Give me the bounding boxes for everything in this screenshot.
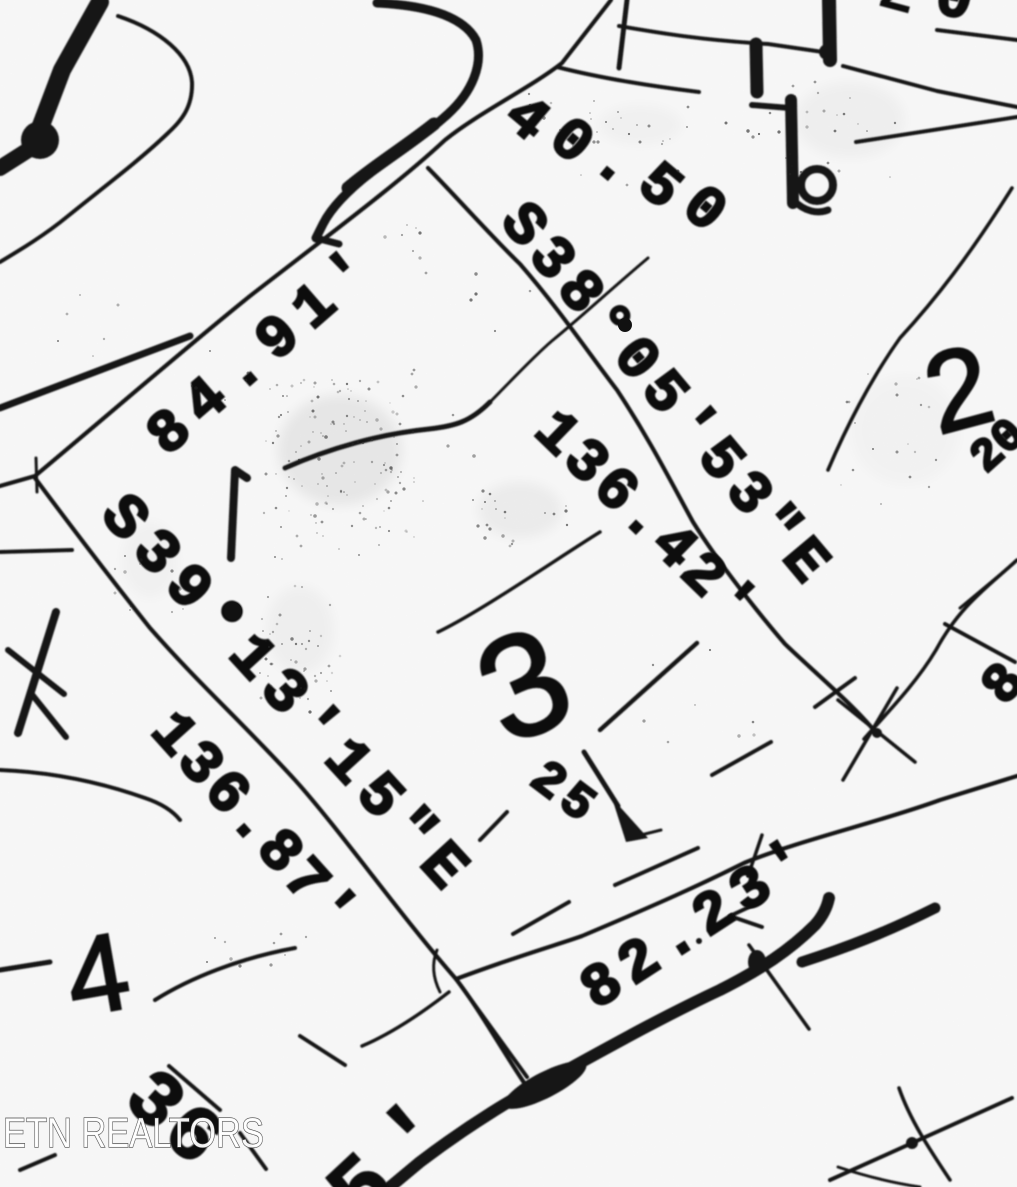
svg-text:ETN REALTORS: ETN REALTORS — [3, 1110, 264, 1157]
